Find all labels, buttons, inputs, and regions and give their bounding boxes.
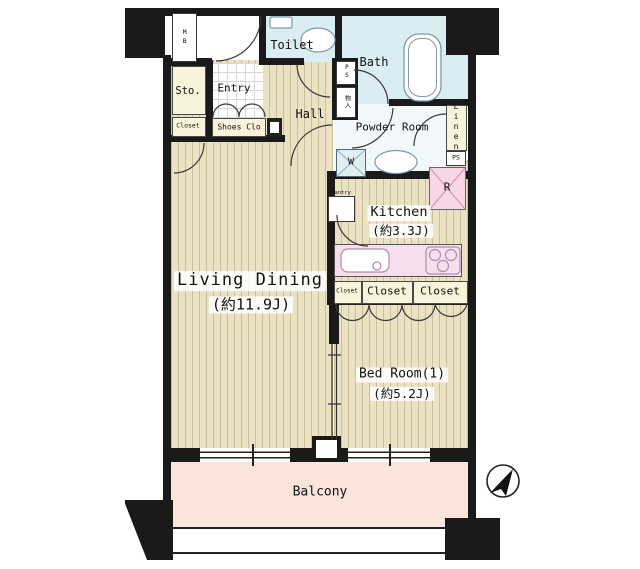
kitchen-sink <box>341 249 389 272</box>
floor-plan: Living Dining (約11.9J) Bed Room(1) (約5.2… <box>0 0 640 569</box>
pantry-label: Pantry <box>331 190 351 196</box>
living-dining-size: (約11.9J) <box>209 296 293 313</box>
hall-label: Hall <box>296 108 325 122</box>
bath-label: Bath <box>360 56 389 70</box>
bed-room-label: Bed Room(1) <box>356 368 448 383</box>
closet-door-arc <box>174 143 204 173</box>
closet-1-label: Closet <box>367 286 407 299</box>
pipe-space-right-label: PS <box>452 154 460 161</box>
wash-basin <box>375 151 417 174</box>
closet-2-label: Closet <box>420 286 460 299</box>
bedroom-closet-doors <box>336 304 467 321</box>
north-arrow-icon <box>487 465 519 497</box>
shoes-closet-label: Shoes Clo <box>217 122 260 131</box>
entry-label: Entry <box>217 83 250 96</box>
linen-label: Linen <box>451 102 460 152</box>
closet-small-label: Closet <box>336 289 358 296</box>
meter-box-label: MB <box>180 28 187 46</box>
storage-label: Sto. <box>175 85 200 97</box>
shoes-closet-doors <box>213 104 265 117</box>
kitchen-door-arc <box>337 215 368 246</box>
kitchen-size: (約3.3J) <box>369 224 433 238</box>
living-door-arc <box>291 125 332 166</box>
refrigerator-label: R <box>444 182 451 195</box>
sliding-door <box>328 344 341 440</box>
balcony-label: Balcony <box>293 486 348 501</box>
bed-room-size: (約5.2J) <box>370 387 434 401</box>
living-dining-label: Living Dining <box>174 271 326 291</box>
toilet-label: Toilet <box>270 39 313 53</box>
hall-closet-label: Closet <box>176 122 199 129</box>
kitchen-label: Kitchen <box>368 205 431 221</box>
washer-label: W <box>348 156 354 168</box>
bath-door-arc <box>354 70 388 104</box>
toilet-door-arc <box>297 64 330 97</box>
pipe-space-label: PS <box>343 64 350 80</box>
powder-room-label: Powder Room <box>356 122 429 135</box>
shaft-label: 物入 <box>343 95 350 109</box>
stove <box>426 247 460 274</box>
bathtub <box>404 34 441 101</box>
entry-door-arc <box>216 16 261 61</box>
